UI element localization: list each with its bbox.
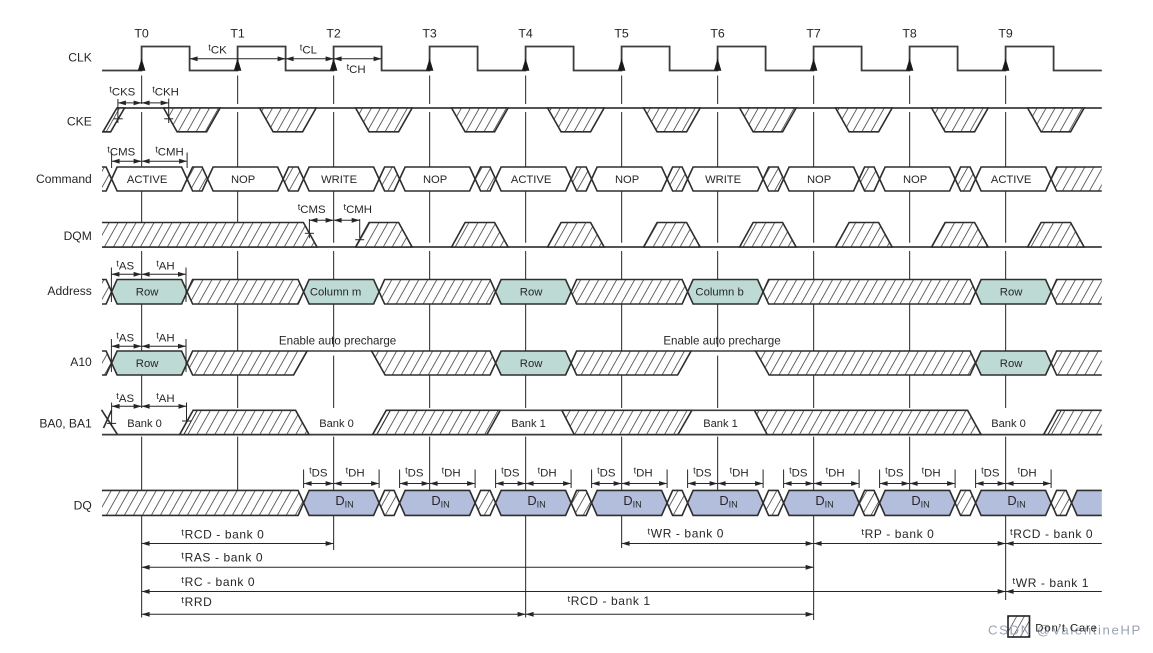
svg-text:Column b: Column b (695, 286, 743, 298)
svg-text:Enable auto precharge: Enable auto precharge (279, 335, 396, 348)
svg-text:Bank 0: Bank 0 (127, 418, 162, 430)
svg-text:T1: T1 (230, 27, 245, 41)
svg-text:tRCD - bank 0: tRCD - bank 0 (1010, 527, 1093, 541)
svg-text:Row: Row (1000, 286, 1023, 298)
svg-text:T9: T9 (998, 27, 1013, 41)
svg-text:tCH: tCH (347, 62, 366, 76)
svg-text:tDH: tDH (730, 466, 749, 480)
svg-text:Enable auto precharge: Enable auto precharge (663, 335, 780, 348)
svg-text:tCMH: tCMH (155, 145, 184, 159)
svg-text:tDS: tDS (309, 466, 328, 480)
svg-text:tDS: tDS (789, 466, 808, 480)
svg-text:tCKS: tCKS (109, 85, 135, 99)
svg-text:tWR - bank 0: tWR - bank 0 (648, 527, 725, 541)
svg-text:ACTIVE: ACTIVE (991, 174, 1031, 186)
svg-text:tDS: tDS (597, 466, 616, 480)
svg-text:BA0, BA1: BA0, BA1 (39, 416, 92, 430)
svg-text:tDS: tDS (885, 466, 904, 480)
svg-text:tRRD: tRRD (181, 595, 212, 609)
svg-text:NOP: NOP (807, 174, 831, 186)
svg-text:tAH: tAH (156, 259, 174, 273)
svg-text:Row: Row (136, 358, 159, 370)
svg-text:tDS: tDS (693, 466, 712, 480)
svg-text:Bank 1: Bank 1 (703, 418, 738, 430)
svg-text:Address: Address (47, 284, 91, 298)
svg-text:tAH: tAH (156, 391, 174, 405)
svg-text:NOP: NOP (615, 174, 639, 186)
svg-text:Don’t Care: Don’t Care (1035, 622, 1097, 634)
svg-text:Bank 0: Bank 0 (991, 418, 1026, 430)
svg-text:T3: T3 (422, 27, 437, 41)
svg-text:Row: Row (520, 286, 543, 298)
svg-text:T5: T5 (614, 27, 629, 41)
svg-text:tRCD - bank 1: tRCD - bank 1 (568, 594, 651, 608)
svg-text:Command: Command (36, 172, 92, 186)
svg-text:tRCD - bank 0: tRCD - bank 0 (181, 528, 264, 542)
svg-text:NOP: NOP (903, 174, 927, 186)
svg-text:CKE: CKE (67, 115, 92, 129)
svg-text:WRITE: WRITE (321, 174, 357, 186)
svg-text:T4: T4 (518, 27, 533, 41)
svg-text:tDH: tDH (442, 466, 461, 480)
svg-text:tAS: tAS (116, 331, 134, 345)
svg-text:T7: T7 (806, 27, 821, 41)
svg-text:DQ: DQ (74, 498, 92, 512)
svg-text:tCMH: tCMH (344, 202, 373, 216)
svg-text:Column m: Column m (310, 286, 361, 298)
svg-text:T0: T0 (134, 27, 149, 41)
svg-text:tDH: tDH (634, 466, 653, 480)
svg-text:T6: T6 (710, 27, 725, 41)
svg-text:tCL: tCL (300, 43, 317, 57)
svg-text:tDH: tDH (346, 466, 365, 480)
svg-text:tRP - bank 0: tRP - bank 0 (861, 527, 934, 541)
svg-text:tAH: tAH (156, 331, 174, 345)
svg-text:ACTIVE: ACTIVE (511, 174, 551, 186)
svg-text:WRITE: WRITE (705, 174, 741, 186)
svg-text:DQM: DQM (64, 229, 92, 243)
svg-text:T2: T2 (326, 27, 341, 41)
svg-text:tRC - bank 0: tRC - bank 0 (181, 575, 255, 589)
svg-text:tCKH: tCKH (152, 85, 179, 99)
svg-text:tDH: tDH (922, 466, 941, 480)
svg-text:tDH: tDH (1018, 466, 1037, 480)
svg-text:tDH: tDH (826, 466, 845, 480)
svg-text:tDS: tDS (501, 466, 520, 480)
svg-text:tCMS: tCMS (107, 145, 135, 159)
svg-text:tWR - bank 1: tWR - bank 1 (1013, 576, 1090, 590)
svg-text:tDS: tDS (405, 466, 424, 480)
svg-text:tCMS: tCMS (298, 202, 326, 216)
svg-text:A10: A10 (70, 355, 92, 369)
svg-text:T8: T8 (902, 27, 917, 41)
svg-text:tCK: tCK (208, 43, 227, 57)
svg-text:tRAS - bank 0: tRAS - bank 0 (181, 551, 263, 565)
svg-text:tAS: tAS (116, 391, 134, 405)
svg-text:Row: Row (1000, 358, 1023, 370)
svg-text:CLK: CLK (68, 50, 92, 64)
svg-text:Row: Row (136, 286, 159, 298)
svg-text:NOP: NOP (423, 174, 447, 186)
svg-text:Bank 1: Bank 1 (511, 418, 546, 430)
svg-text:tAS: tAS (116, 259, 134, 273)
svg-text:Bank 0: Bank 0 (319, 418, 354, 430)
svg-text:Row: Row (520, 358, 543, 370)
svg-text:tDS: tDS (981, 466, 1000, 480)
svg-text:ACTIVE: ACTIVE (127, 174, 167, 186)
svg-text:NOP: NOP (231, 174, 255, 186)
svg-text:tDH: tDH (538, 466, 557, 480)
